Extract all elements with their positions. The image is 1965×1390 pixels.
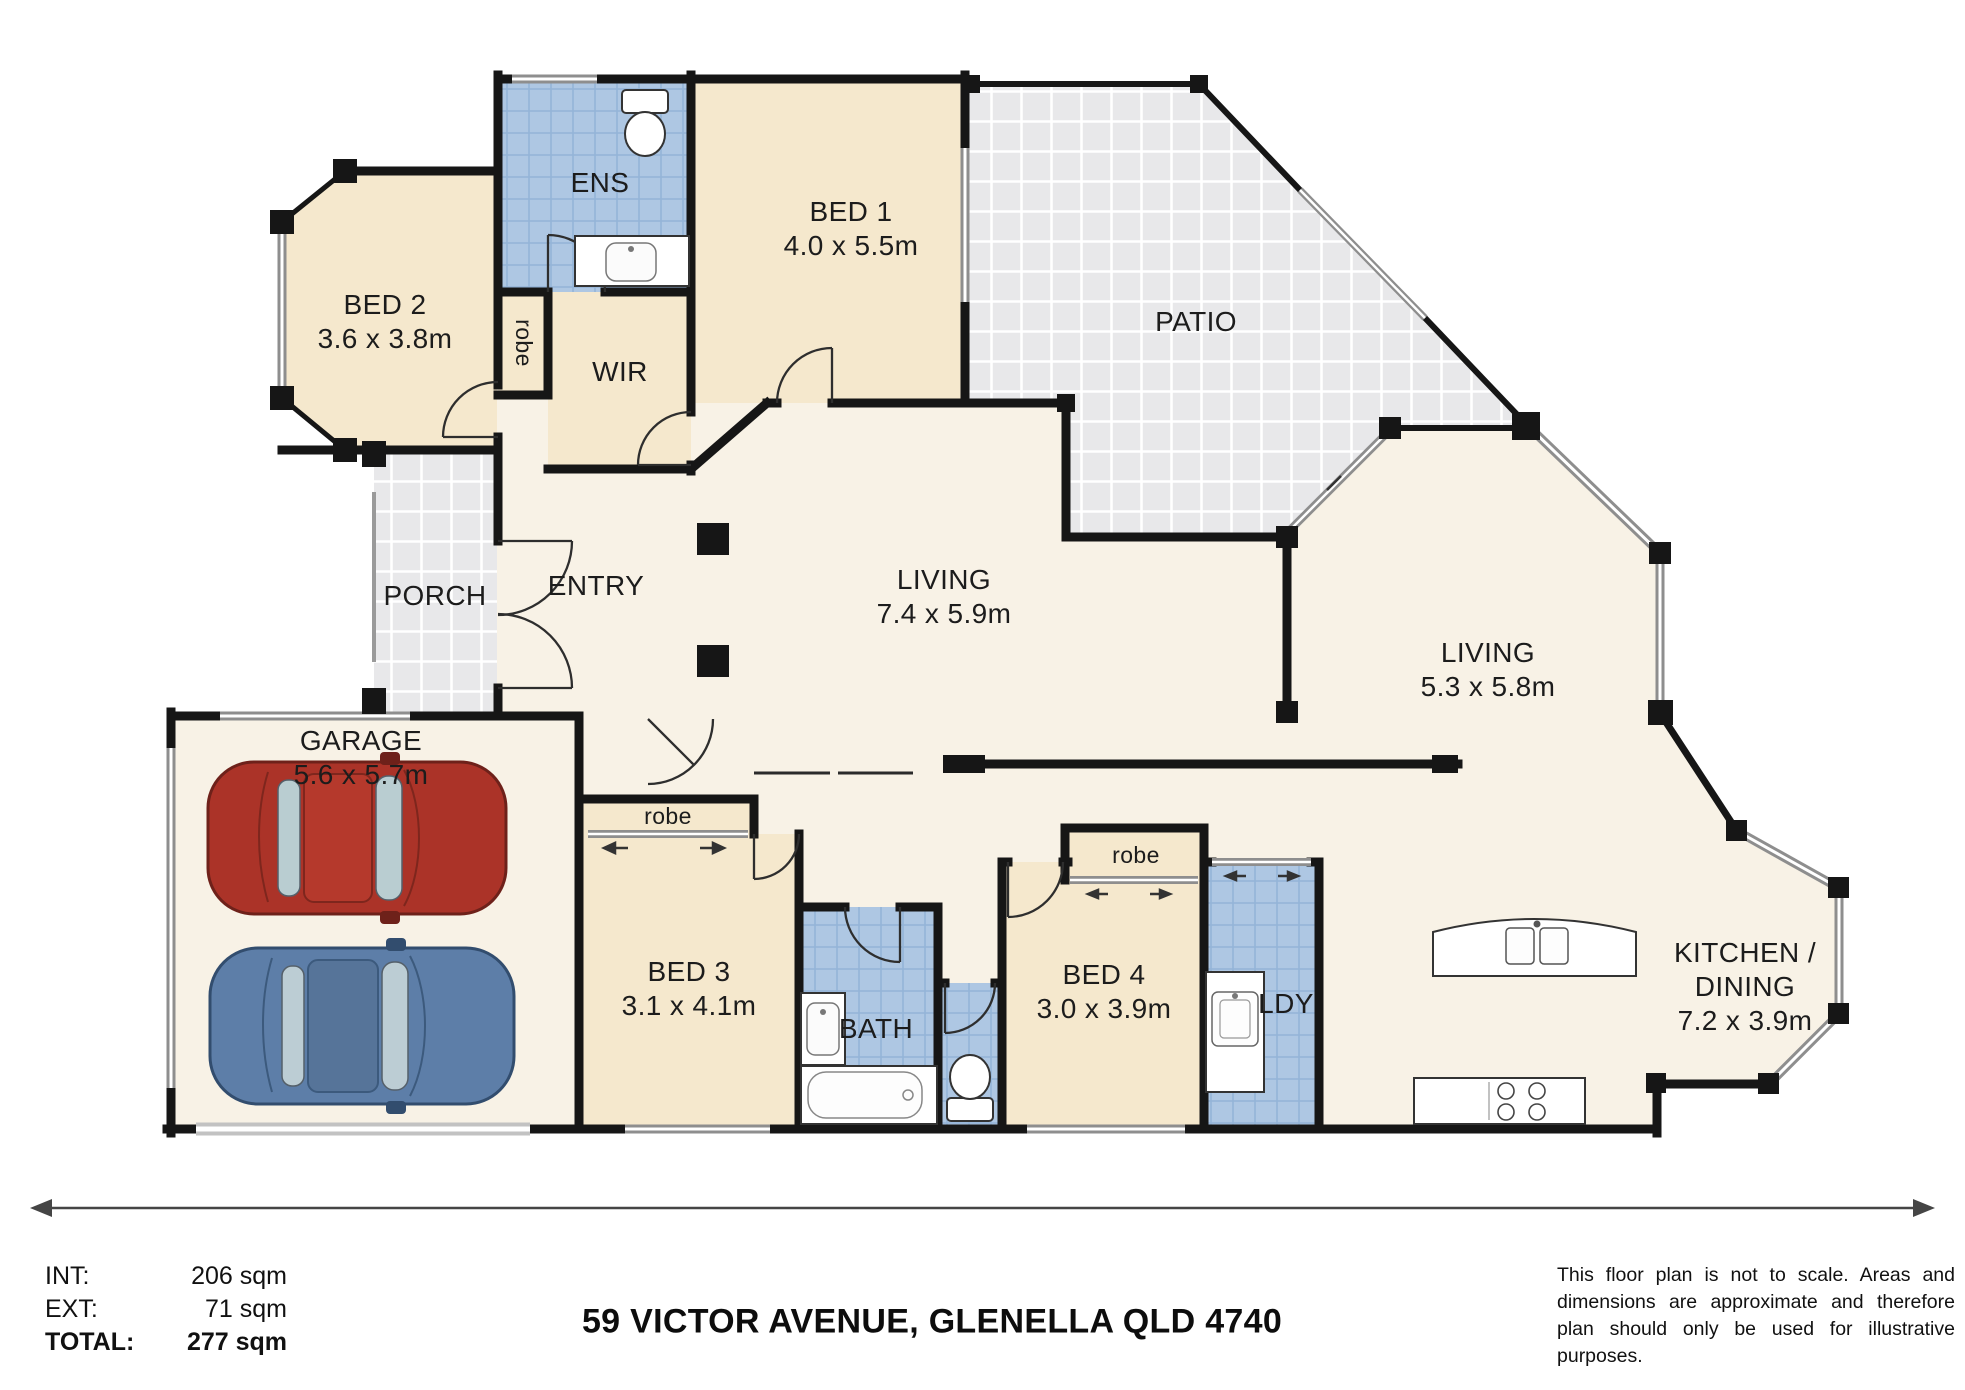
floor-plan-page: ENS BED 14.0 x 5.5m BED 23.6 x 3.8m robe… [0, 0, 1965, 1390]
room-label-patio: PATIO [1155, 305, 1237, 339]
room-label-living-main: LIVING7.4 x 5.9m [877, 563, 1012, 631]
laundry-tub [1206, 972, 1264, 1092]
ens-toilet [622, 90, 668, 156]
room-label-garage: GARAGE5.6 x 5.7m [294, 724, 429, 792]
area-total-value: 277 sqm [187, 1326, 287, 1359]
scale-bar [30, 1199, 1935, 1217]
area-int-value: 206 sqm [191, 1260, 287, 1293]
room-label-robe-bed2: robe [511, 319, 537, 367]
area-int-label: INT: [45, 1260, 89, 1293]
room-label-bath: BATH [839, 1012, 913, 1046]
room-label-entry: ENTRY [548, 569, 644, 603]
room-label-laundry: LDY [1258, 987, 1314, 1021]
room-label-bed2: BED 23.6 x 3.8m [318, 288, 453, 356]
ens-vanity [575, 236, 689, 286]
room-label-bed3: BED 33.1 x 4.1m [622, 955, 757, 1023]
room-label-bed1: BED 14.0 x 5.5m [784, 195, 919, 263]
room-label-living-rear: LIVING5.3 x 5.8m [1421, 636, 1556, 704]
property-address: 59 VICTOR AVENUE, GLENELLA QLD 4740 [582, 1303, 1282, 1342]
room-label-robe-bed3: robe [644, 803, 692, 829]
disclaimer-text: This floor plan is not to scale. Areas a… [1557, 1262, 1955, 1370]
wc-toilet [947, 1055, 993, 1121]
area-row-ext: EXT: 71 sqm [45, 1293, 287, 1326]
car-blue [210, 938, 514, 1114]
floor-plan-canvas [0, 0, 1965, 1390]
room-label-kitchen: KITCHEN /DINING7.2 x 3.9m [1674, 936, 1816, 1038]
area-ext-value: 71 sqm [205, 1293, 287, 1326]
room-label-robe-bed4: robe [1112, 842, 1160, 868]
room-label-wir: WIR [592, 355, 648, 389]
bathtub [801, 1066, 937, 1124]
area-row-total: TOTAL: 277 sqm [45, 1326, 287, 1359]
kitchen-island [1433, 919, 1636, 976]
area-ext-label: EXT: [45, 1293, 98, 1326]
area-row-int: INT: 206 sqm [45, 1260, 287, 1293]
room-label-ens: ENS [571, 166, 630, 200]
area-total-label: TOTAL: [45, 1326, 134, 1359]
kitchen-cooktop-bench [1414, 1078, 1585, 1124]
area-summary: INT: 206 sqm EXT: 71 sqm TOTAL: 277 sqm [45, 1260, 287, 1359]
room-label-bed4: BED 43.0 x 3.9m [1037, 958, 1172, 1026]
room-label-porch: PORCH [383, 579, 486, 613]
